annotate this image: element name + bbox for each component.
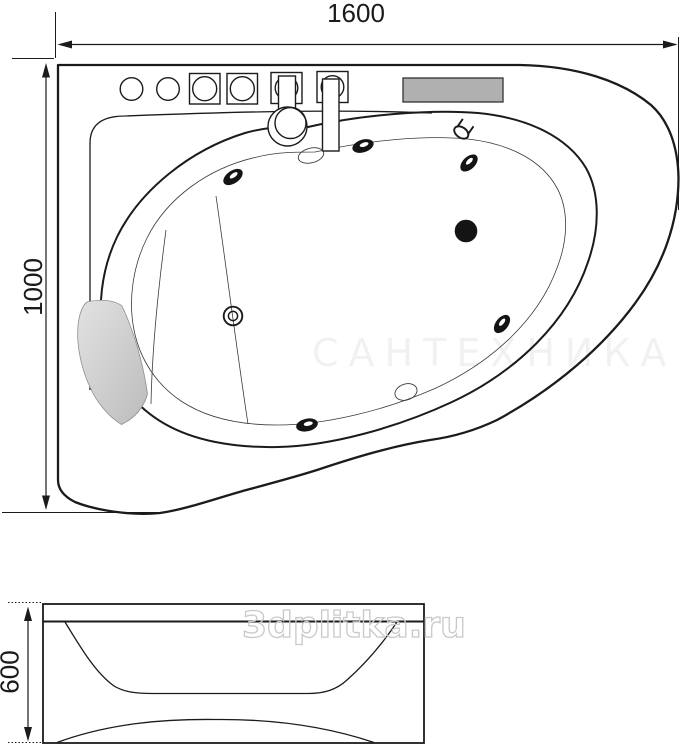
control-knob-icon (193, 77, 217, 101)
apron-arch (57, 719, 374, 742)
arrowhead-down (42, 496, 50, 511)
arrowhead-right (663, 41, 678, 49)
arrowhead-up (42, 63, 50, 78)
control-knob-icon (157, 78, 180, 101)
suction-ring-icon (393, 381, 419, 403)
width-dimension-label: 1600 (327, 0, 385, 28)
backrest-line-left (151, 230, 166, 404)
top-view: САНТЕХНИКА 1600 1000 (2, 0, 679, 514)
jet-icon (351, 137, 376, 156)
bathtub-technical-drawing: САНТЕХНИКА 1600 1000 (0, 0, 685, 746)
faucet-spout (323, 79, 340, 151)
arrowhead-down (24, 727, 32, 742)
drain-icon (455, 220, 478, 243)
dimension-width: 1600 (56, 0, 679, 210)
backrest-line-right (216, 196, 248, 424)
height-dimension-label: 1000 (18, 258, 48, 316)
deck-panel (403, 78, 503, 102)
watermark-outline: 3dplitka.ru (242, 605, 466, 646)
faucet-escutcheon-outer (268, 107, 307, 146)
side-height-dimension-label: 600 (0, 650, 25, 693)
tub-outer-outline (58, 65, 679, 514)
arrowhead-left (58, 41, 73, 49)
hydro-jets (220, 137, 513, 434)
watermark-faint-top: САНТЕХНИКА (312, 331, 676, 375)
dimension-side-height: 600 (0, 603, 42, 743)
basin-waterline (132, 138, 566, 425)
dimension-height: 1000 (2, 59, 158, 513)
drawing-canvas: САНТЕХНИКА 1600 1000 (0, 0, 685, 746)
control-knob-icon (230, 77, 254, 101)
headrest-pillow (78, 300, 148, 424)
back-jet-icon (224, 307, 243, 326)
overflow-ring-icon (297, 145, 326, 165)
jet-icon (220, 166, 245, 189)
side-view: 600 3dplitka.ru (0, 603, 466, 744)
jet-icon (295, 417, 319, 434)
jet-icon (457, 151, 481, 175)
control-knob-icon (120, 78, 143, 101)
arrowhead-up (24, 607, 32, 622)
